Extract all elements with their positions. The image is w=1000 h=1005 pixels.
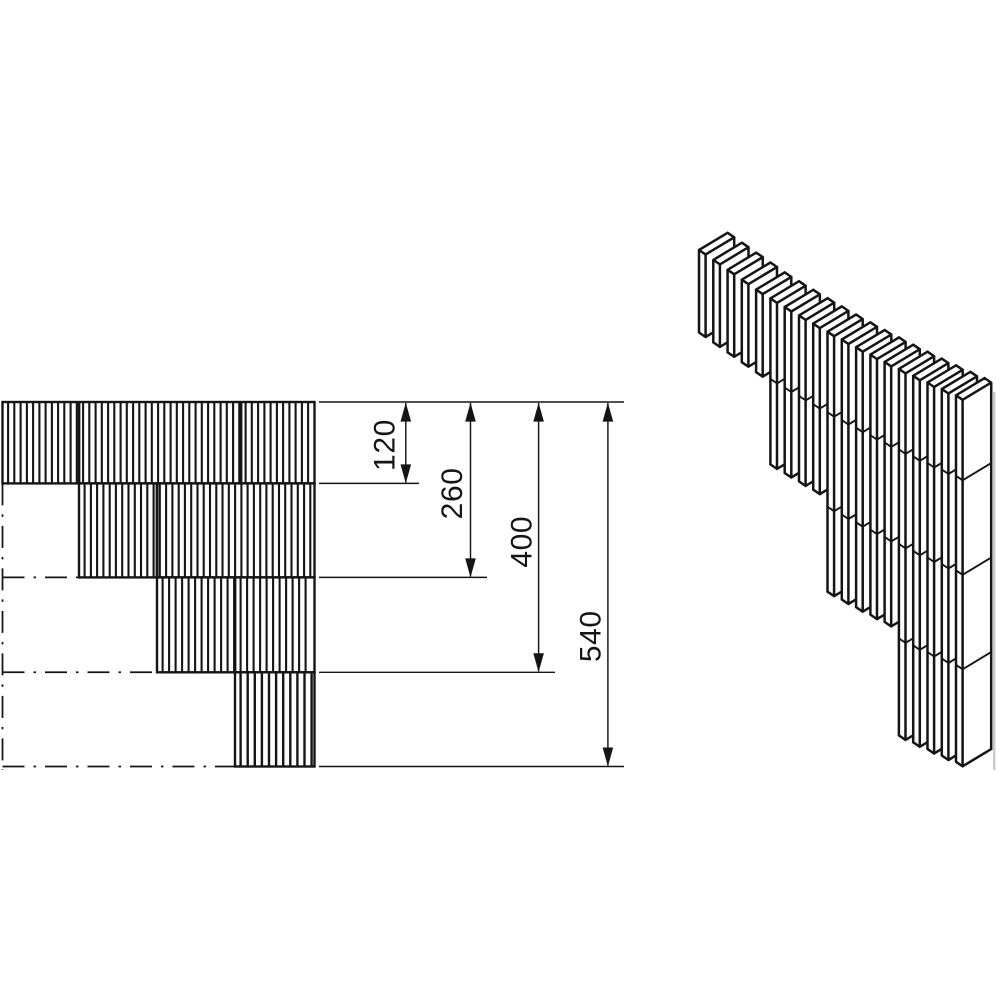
svg-text:400: 400 — [505, 516, 538, 568]
svg-text:120: 120 — [368, 419, 401, 471]
svg-text:260: 260 — [436, 467, 469, 519]
svg-text:540: 540 — [575, 610, 608, 662]
